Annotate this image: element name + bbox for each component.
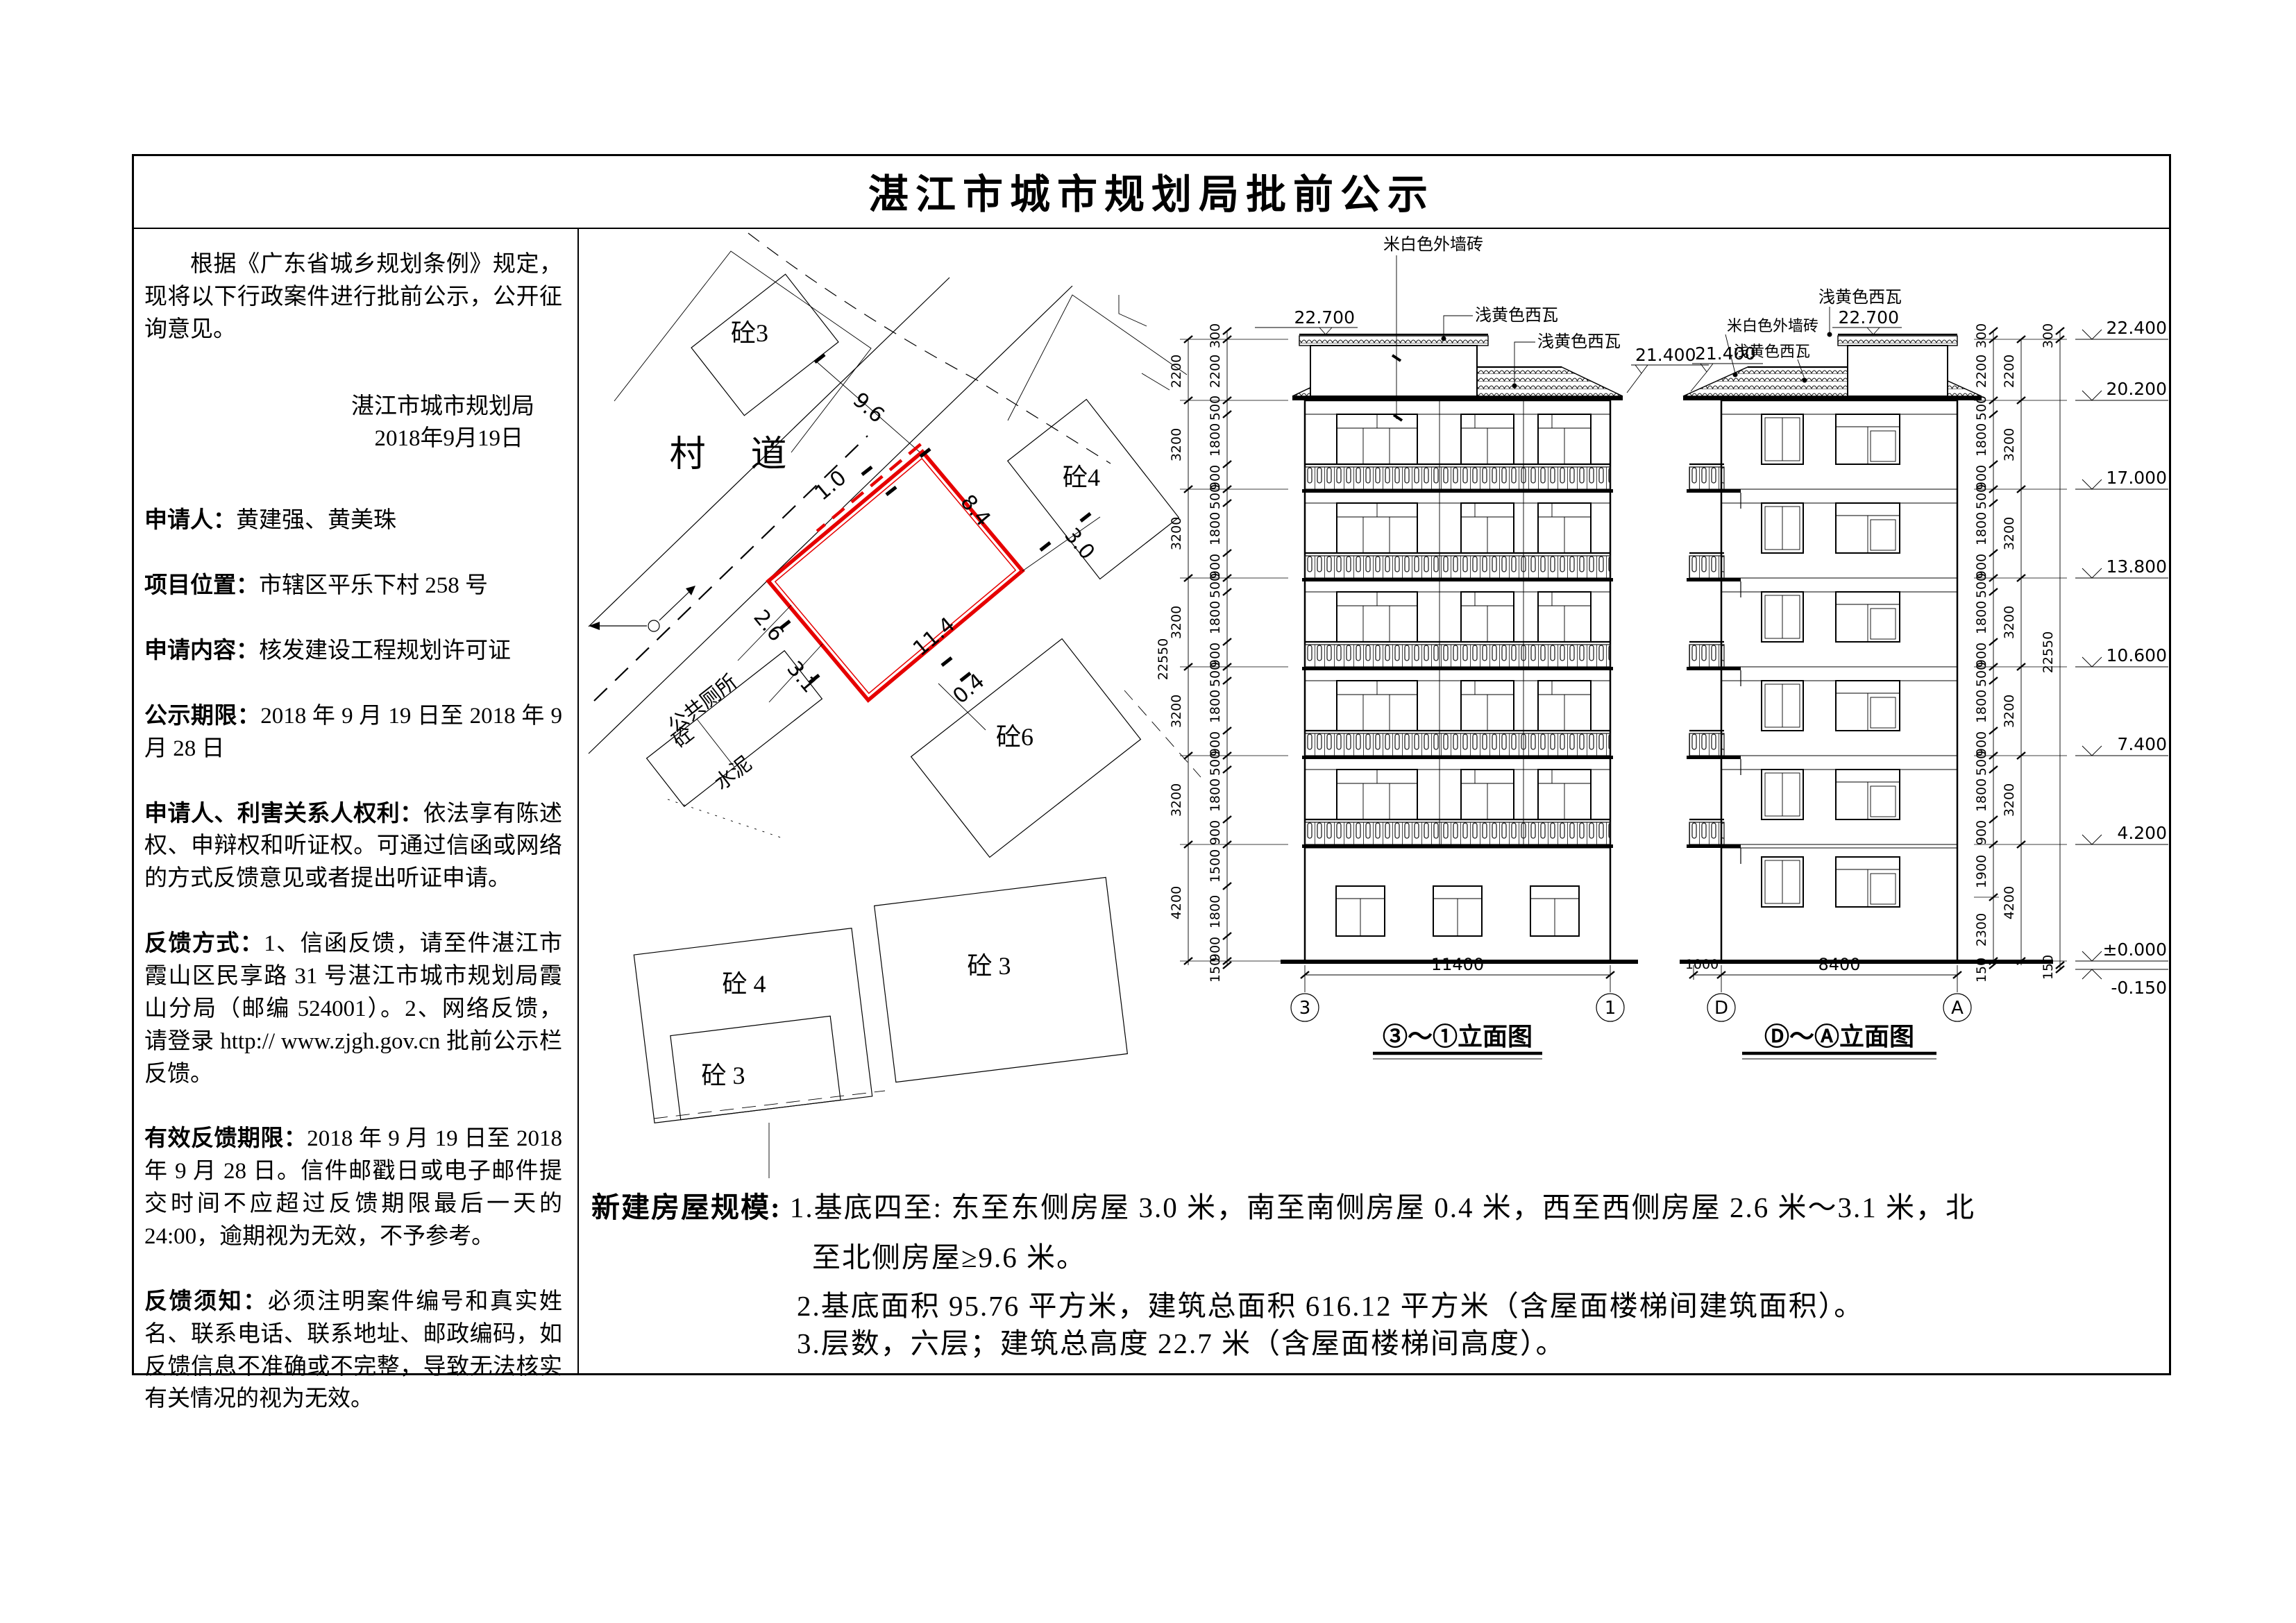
field-rights-label: 申请人、利害关系人权利：: [144, 800, 423, 826]
dim-rg-3: 3200: [2002, 606, 2017, 639]
toilet-label: 公共厕所: [664, 670, 741, 738]
parcel-b4-right: [1008, 295, 1187, 420]
building-b3-nested: [670, 1016, 841, 1119]
field-feedback-notes-label: 反馈须知：: [144, 1288, 268, 1314]
compass-circle-icon: [648, 620, 659, 631]
scale-note-line3-text: 2.基底面积 95.76 平方米，建筑总面积 616.12 平方米（含屋面楼梯间…: [797, 1290, 1864, 1322]
grid-label-1: 1: [1605, 998, 1617, 1019]
cement-dotted-line: [668, 799, 783, 838]
note-tile2-left: 浅黄色西瓦: [1537, 332, 1621, 351]
marker-20200: 20.200: [2107, 379, 2167, 399]
field-applicant: 申请人：黄建强、黄美珠: [144, 504, 562, 537]
dim-frontage: 1.0: [810, 466, 851, 505]
field-location-value: 市辖区平乐下村 258 号: [259, 573, 488, 598]
notice-authority: 湛江市城市规划局: [144, 391, 562, 423]
elevation-left: 22.700 21.400 米白色外墙砖 浅黄色西瓦 浅黄色西瓦 300 220…: [1156, 235, 1709, 1059]
dim-lf-18: 1800: [1208, 895, 1223, 928]
level-ridge-left: 21.400: [1635, 345, 1696, 365]
elevation-right: 浅黄色西瓦 22.700 米白色外墙砖 浅黄色西瓦 21.400 300 220…: [1680, 288, 2168, 1059]
building-b6-label: 砼6: [996, 723, 1033, 751]
dim-lf-1: 2200: [1208, 355, 1223, 388]
scale-note-line1-text: 1.基底四至: 东至东侧房屋 3.0 米，南至南侧房屋 0.4 米，西至西侧房屋…: [790, 1191, 1975, 1223]
dim-rg-5: 3200: [2002, 783, 2017, 817]
dim-lf-16: 900: [1208, 820, 1223, 845]
dim-lf-8: 500: [1208, 573, 1223, 598]
level-top-left: 22.700: [1294, 307, 1355, 328]
note-tile2-right-dot-icon: [1803, 378, 1807, 383]
field-period-label: 公示期限：: [144, 702, 260, 728]
note-tile2-dot-icon: [1512, 384, 1517, 389]
dim-rf-1: 2200: [1974, 355, 1989, 388]
span-dim-left: 11400: [1431, 955, 1484, 974]
dim-left-total: 22550: [1156, 638, 1171, 680]
dim-lf-15: 1800: [1208, 779, 1223, 812]
dim-rf-6: 1800: [1974, 512, 1989, 545]
dim-lf-0: 300: [1208, 323, 1223, 348]
site-plan: 砼3 9.6 8.4 11.4 0.4 1.0 2.6 3.1 3.0 村 道 …: [589, 233, 1201, 1178]
level-top-right: 22.700: [1839, 307, 1899, 328]
field-content-label: 申请内容：: [144, 637, 259, 663]
scale-note-line4-text: 3.层数，六层；建筑总高度 22.7 米（含屋面楼梯间高度）。: [797, 1327, 1566, 1359]
dim-rf-19: 150: [1974, 958, 1989, 983]
field-feedback-method: 反馈方式：1、信函反馈，请至件湛江市霞山区民享路 31 号湛江市城市规划局霞山分…: [144, 927, 562, 1090]
dim-lg-5: 3200: [1169, 783, 1184, 817]
dim-rt-0: 300: [2041, 323, 2056, 348]
grid-label-A: A: [1951, 998, 1964, 1019]
caption-left-elevation: ③～①立面图: [1383, 1023, 1533, 1051]
dim-lg-3: 3200: [1169, 606, 1184, 639]
dim-rt-2: 150: [2041, 955, 2056, 980]
note-wall-left: 米白色外墙砖: [1383, 235, 1483, 254]
scale-note-line3: 2.基底面积 95.76 平方米，建筑总面积 616.12 平方米（含屋面楼梯间…: [797, 1282, 1864, 1324]
span-dim-right: 8400: [1818, 955, 1860, 974]
marker-4200: 4.200: [2117, 823, 2167, 843]
stair-bulkhead-left: [1310, 346, 1477, 396]
field-feedback-deadline-label: 有效反馈期限：: [144, 1125, 307, 1150]
marker-17000: 17.000: [2107, 468, 2167, 488]
stair-bulkhead-roof-right: [1838, 336, 1957, 346]
notice-date: 2018年9月19日: [144, 423, 562, 455]
field-applicant-value: 黄建强、黄美珠: [236, 508, 396, 533]
parcel-corner-mark: [1119, 295, 1147, 326]
field-location: 项目位置：市辖区平乐下村 258 号: [144, 569, 562, 602]
scale-note-line1: 新建房屋规模: 1.基底四至: 东至东侧房屋 3.0 米，南至南侧房屋 0.4 …: [591, 1184, 1975, 1225]
building-b3-bottom-right-label: 砼 3: [967, 952, 1011, 980]
subject-parcel-inner: [775, 459, 1015, 693]
note-tile1-dot-icon: [1442, 337, 1446, 341]
drawing-area: 砼3 9.6 8.4 11.4 0.4 1.0 2.6 3.1 3.0 村 道 …: [578, 229, 2172, 1181]
field-content-value: 核发建设工程规划许可证: [259, 638, 511, 663]
title-bar: 湛江市城市规划局批前公示: [132, 154, 2171, 229]
cement-label: 水泥: [710, 752, 756, 795]
dim-rf-5: 500: [1974, 484, 1989, 509]
parcel-corner-mark2: [1142, 373, 1170, 390]
road-label: 村 道: [669, 435, 804, 475]
dim-rf-11: 500: [1974, 662, 1989, 687]
dim-lg-4: 3200: [1169, 695, 1184, 728]
dim-rf-9: 1800: [1974, 601, 1989, 634]
dim-lf-2: 500: [1208, 396, 1223, 420]
building-b3-top-label: 砼3: [731, 319, 768, 347]
dim-lg-1: 3200: [1169, 428, 1184, 461]
field-feedback-notes: 反馈须知：必须注明案件编号和真实姓名、联系电话、联系地址、邮政编码，如反馈信息不…: [144, 1285, 562, 1416]
marker-22400: 22.400: [2107, 318, 2167, 338]
marker-10600: 10.600: [2107, 645, 2167, 665]
marker-13800: 13.800: [2107, 556, 2167, 577]
dim-lf-20: 150: [1208, 958, 1223, 983]
page-title: 湛江市城市规划局批前公示: [868, 162, 1435, 220]
level-ridge-flag-icon: [1627, 365, 1648, 393]
caption-right-elevation: Ⓓ～Ⓐ立面图: [1764, 1023, 1914, 1051]
compass: [589, 586, 695, 631]
parcel-b3-top: [614, 251, 871, 452]
dim-rf-2: 500: [1974, 396, 1989, 420]
dim-lf-6: 1800: [1208, 512, 1223, 545]
boundary-dashed-bottom: [654, 1091, 885, 1119]
dim-rf-18: 2300: [1974, 913, 1989, 946]
notice-intro: 根据《广东省城乡规划条例》规定，现将以下行政案件进行批前公示，公开征询意见。: [144, 248, 562, 346]
dim-rg-2: 3200: [2002, 517, 2017, 550]
dim-rg-6: 4200: [2002, 886, 2017, 919]
building-b3-nested-label: 砼 3: [701, 1062, 745, 1089]
dim-rf-14: 500: [1974, 751, 1989, 776]
field-rights: 申请人、利害关系人权利：依法享有陈述权、申辩权和听证权。可通过信函或网络的方式反…: [144, 797, 562, 896]
building-b4-bottom-label: 砼 4: [722, 970, 766, 998]
level-markers: 22.400 20.200 17.000 13.800 10.600 7.400…: [2075, 318, 2168, 998]
road-edge-south: [589, 286, 1072, 754]
dim-lg-2: 3200: [1169, 517, 1184, 550]
note-wall-right-dot-icon: [1733, 373, 1738, 377]
level-ridge-right: 21.400: [1695, 343, 1755, 364]
marker-7400: 7.400: [2117, 734, 2167, 754]
arrow-west-icon: [589, 622, 600, 630]
note-tile1-left: 浅黄色西瓦: [1475, 306, 1558, 325]
dim-rf-3: 1800: [1974, 423, 1989, 457]
building-b3-bottom-right: [875, 877, 1128, 1082]
dim-lf-9: 1800: [1208, 601, 1223, 634]
dim-rf-12: 1800: [1974, 690, 1989, 723]
dim-lf-14: 500: [1208, 751, 1223, 776]
dim-lf-12: 1800: [1208, 690, 1223, 723]
dim-rg-1: 3200: [2002, 428, 2017, 461]
scale-note-line2-text: 至北侧房屋≥9.6 米。: [812, 1241, 1086, 1273]
note-tile1-right: 浅黄色西瓦: [1818, 288, 1902, 307]
dim-rf-17: 1900: [1974, 855, 1989, 888]
building-b4-right-label: 砼4: [1063, 464, 1100, 491]
scale-note-label: 新建房屋规模:: [591, 1191, 782, 1223]
offset-dim-right: 1000: [1685, 957, 1719, 972]
grid-label-3: 3: [1299, 998, 1311, 1019]
field-period: 公示期限：2018 年 9 月 19 日至 2018 年 9 月 28 日: [144, 699, 562, 765]
dim-lf-17: 1500: [1208, 849, 1223, 883]
dim-north: 9.6: [848, 388, 889, 428]
dim-rf-0: 300: [1974, 323, 1989, 348]
field-applicant-label: 申请人：: [144, 507, 236, 532]
dim-lg-0: 2200: [1169, 355, 1184, 388]
dim-rt-1: 22550: [2041, 631, 2056, 673]
dim-rg-4: 3200: [2002, 695, 2017, 728]
stair-bulkhead-roof-left: [1299, 336, 1488, 346]
dim-lg-6: 4200: [1169, 886, 1184, 919]
field-content: 申请内容：核发建设工程规划许可证: [144, 634, 562, 668]
note-tile1-right-dot-icon: [1827, 332, 1832, 337]
field-location-label: 项目位置：: [144, 572, 259, 597]
witness-lines-left: [1180, 339, 1288, 961]
scale-note-line2: 至北侧房屋≥9.6 米。: [812, 1234, 1086, 1275]
marker-minus150: -0.150: [2111, 978, 2167, 998]
building-toilet-divider: [697, 719, 734, 767]
note-wall-right: 米白色外墙砖: [1727, 317, 1818, 334]
dim-rf-8: 500: [1974, 573, 1989, 598]
level-top-right-flag-icon: [1867, 328, 1880, 334]
dim-rg-0: 2200: [2002, 355, 2017, 388]
dim-east-gap: 3.0: [1060, 523, 1099, 564]
dim-lf-11: 500: [1208, 662, 1223, 687]
scale-note-line4: 3.层数，六层；建筑总高度 22.7 米（含屋面楼梯间高度）。: [797, 1320, 1566, 1361]
field-feedback-method-label: 反馈方式：: [144, 930, 264, 955]
dim-lf-3: 1800: [1208, 423, 1223, 457]
field-feedback-deadline: 有效反馈期限：2018 年 9 月 19 日至 2018 年 9 月 28 日。…: [144, 1122, 562, 1252]
dim-lf-5: 500: [1208, 484, 1223, 509]
notice-text-column: 根据《广东省城乡规划条例》规定，现将以下行政案件进行批前公示，公开征询意见。 湛…: [132, 229, 579, 1375]
grid-label-D: D: [1714, 998, 1728, 1019]
road-boundary-arc-dashed: [748, 233, 1111, 464]
level-flag-icon: [1319, 328, 1332, 334]
marker-0000: ±0.000: [2102, 940, 2167, 960]
dim-rf-16: 900: [1974, 820, 1989, 845]
stair-bulkhead-right: [1848, 346, 1948, 396]
dim-rf-15: 1800: [1974, 779, 1989, 812]
